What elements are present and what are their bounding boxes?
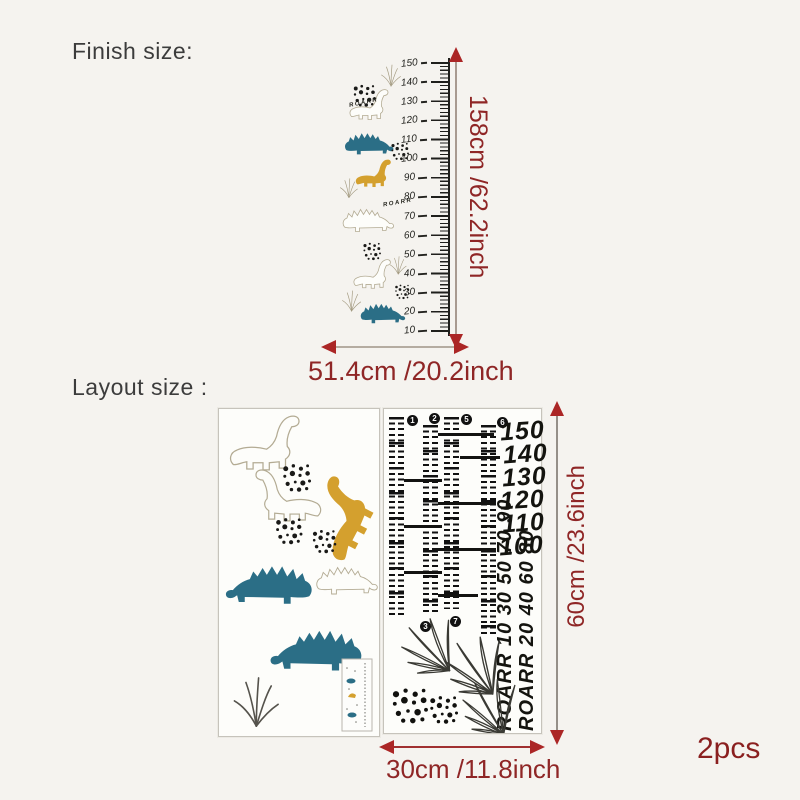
ruler-strip-1 <box>389 417 404 616</box>
dots-pattern-icon <box>283 464 311 492</box>
ruler-tick-120: 120 <box>401 115 427 125</box>
ruler-connector-line <box>438 433 494 436</box>
ruler-tick-90: 90 <box>401 173 427 183</box>
strip-marker-5: 5 <box>461 414 472 425</box>
layout-width-arrow <box>392 746 532 748</box>
ruler-tick-30: 30 <box>401 288 427 298</box>
ruler-tick-100: 100 <box>401 154 427 164</box>
ruler-tick-60: 60 <box>401 230 427 240</box>
finish-chart-ruler: 150 140 130 120 110 100 90 80 70 60 50 4… <box>401 58 450 336</box>
ruler-tick-140: 140 <box>401 77 427 87</box>
dots-pattern-icon <box>313 530 336 553</box>
left-sticker-sheet <box>218 408 380 737</box>
dots-pattern-icon <box>430 696 458 724</box>
plant-icon <box>340 179 357 198</box>
ruler-strip-3 <box>444 417 459 609</box>
palm-leaf-icon <box>447 637 500 694</box>
ruler-tick-150: 150 <box>401 58 427 68</box>
layout-size-label: Layout size : <box>72 374 208 401</box>
dots-pattern-icon <box>363 243 381 260</box>
brontosaurus-mustard-icon <box>298 474 379 564</box>
stegosaurus-teal-icon <box>226 566 312 603</box>
product-dimension-diagram: Finish size: ROARR ROARR 150 140 130 120… <box>0 0 800 800</box>
finish-ruler-ticks <box>429 58 450 336</box>
finish-height-arrow <box>455 60 457 336</box>
ruler-tick-50: 50 <box>401 249 427 259</box>
stegosaurus-outline-icon <box>317 568 378 594</box>
dots-pattern-icon <box>393 688 428 723</box>
finish-size-label: Finish size: <box>72 38 193 65</box>
ruler-tick-70: 70 <box>401 211 427 221</box>
ruler-connector-line <box>460 456 500 459</box>
layout-height-arrow <box>556 414 558 732</box>
ruler-tick-80: 80 <box>401 192 427 202</box>
mini-preview-strip <box>342 659 372 731</box>
brontosaurus-mustard-icon <box>356 160 391 187</box>
brontosaurus-outline-icon <box>354 260 391 289</box>
ruler-tick-110: 110 <box>401 135 427 145</box>
rotated-number-column-b: ROARR 20 40 60 80 <box>516 549 539 731</box>
brontosaurus-outline-icon <box>256 470 321 521</box>
ruler-strip-2 <box>423 425 438 614</box>
ruler-connector-line <box>438 548 496 551</box>
ruler-connector-line <box>438 502 496 505</box>
plant-icon <box>382 65 401 86</box>
finish-height-label: 158cm /62.2inch <box>463 95 492 278</box>
finish-width-label: 51.4cm /20.2inch <box>308 356 514 387</box>
strip-marker-3: 3 <box>420 621 431 632</box>
strip-marker-7: 7 <box>450 616 461 627</box>
ruler-connector-line <box>404 479 442 482</box>
ruler-connector-line <box>404 525 442 528</box>
strip-marker-2: 2 <box>429 413 440 424</box>
rotated-number-column-a: ROARR 10 30 50 70 90 <box>494 549 517 731</box>
ruler-tick-130: 130 <box>401 96 427 106</box>
layout-height-label: 60cm /23.6inch <box>563 465 591 628</box>
layout-width-label: 30cm /11.8inch <box>386 754 560 785</box>
ruler-connector-line <box>438 594 478 597</box>
ruler-tick-40: 40 <box>401 269 427 279</box>
finish-width-arrow <box>334 346 456 348</box>
pieces-count-label: 2pcs <box>697 732 760 766</box>
finish-ruler-numbers: 150 140 130 120 110 100 90 80 70 60 50 4… <box>401 58 427 336</box>
stegosaurus-outline-icon <box>343 210 393 232</box>
dots-pattern-icon <box>276 518 302 544</box>
stegosaurus-teal-icon <box>345 133 393 154</box>
plant-icon <box>234 678 278 726</box>
plant-icon <box>342 291 360 311</box>
stegosaurus-teal-icon <box>361 304 405 323</box>
ruler-tick-10: 10 <box>401 326 427 336</box>
strip-marker-1: 1 <box>407 415 418 426</box>
left-sheet-illustrations <box>219 409 379 736</box>
ruler-tick-20: 20 <box>401 307 427 317</box>
ruler-connector-line <box>404 571 442 574</box>
right-sticker-sheet: 1 2 5 6 3 7 150 140 130 120 110 100 ROAR… <box>383 408 542 734</box>
brontosaurus-outline-icon <box>231 416 299 470</box>
